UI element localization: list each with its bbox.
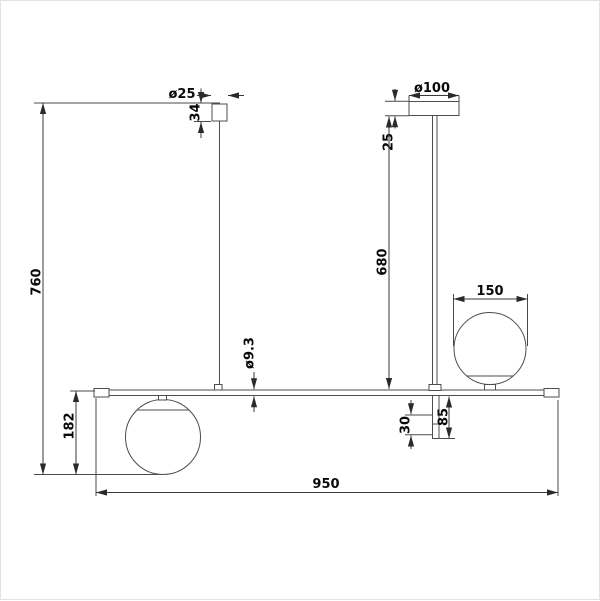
cable-connector — [215, 385, 223, 391]
dim-label-150: 150 — [476, 284, 503, 299]
suspension-stem — [433, 116, 438, 385]
dim-stem-length: 680 — [376, 117, 391, 390]
dim-large-canopy-height: 25 — [382, 89, 410, 151]
stem-bar-connector — [429, 385, 441, 391]
dim-label-34: 34 — [189, 103, 204, 121]
dim-label-o100: ø100 — [414, 81, 450, 96]
small-canopy — [212, 104, 227, 121]
dim-label-o9-3: ø9.3 — [243, 337, 258, 369]
dim-bar-diameter: ø9.3 — [243, 337, 258, 412]
horizontal-bar — [96, 390, 558, 396]
large-canopy — [409, 102, 459, 116]
dim-label-680: 680 — [376, 248, 391, 275]
left-globe — [126, 400, 201, 475]
dim-label-182: 182 — [63, 412, 78, 439]
dim-socket-section: 30 — [399, 400, 433, 449]
right-globe — [454, 313, 526, 385]
dim-label-760: 760 — [30, 268, 45, 295]
dim-label-85: 85 — [437, 408, 452, 426]
dim-large-canopy-diameter: ø100 — [409, 81, 459, 101]
dim-label-o25: ø25 — [168, 87, 195, 102]
bar-right-endcap — [544, 389, 559, 398]
bar-left-endcap — [94, 389, 109, 398]
dim-label-950: 950 — [312, 477, 339, 492]
dim-left-globe-drop: 182 — [63, 391, 96, 475]
dim-label-30: 30 — [399, 416, 414, 434]
dim-small-canopy-diameter: ø25 — [168, 87, 244, 102]
dimension-drawing: ø25 34 ø100 25 680 760 182 — [0, 0, 600, 600]
pendant-lamp-diagram: ø25 34 ø100 25 680 760 182 — [1, 1, 600, 601]
